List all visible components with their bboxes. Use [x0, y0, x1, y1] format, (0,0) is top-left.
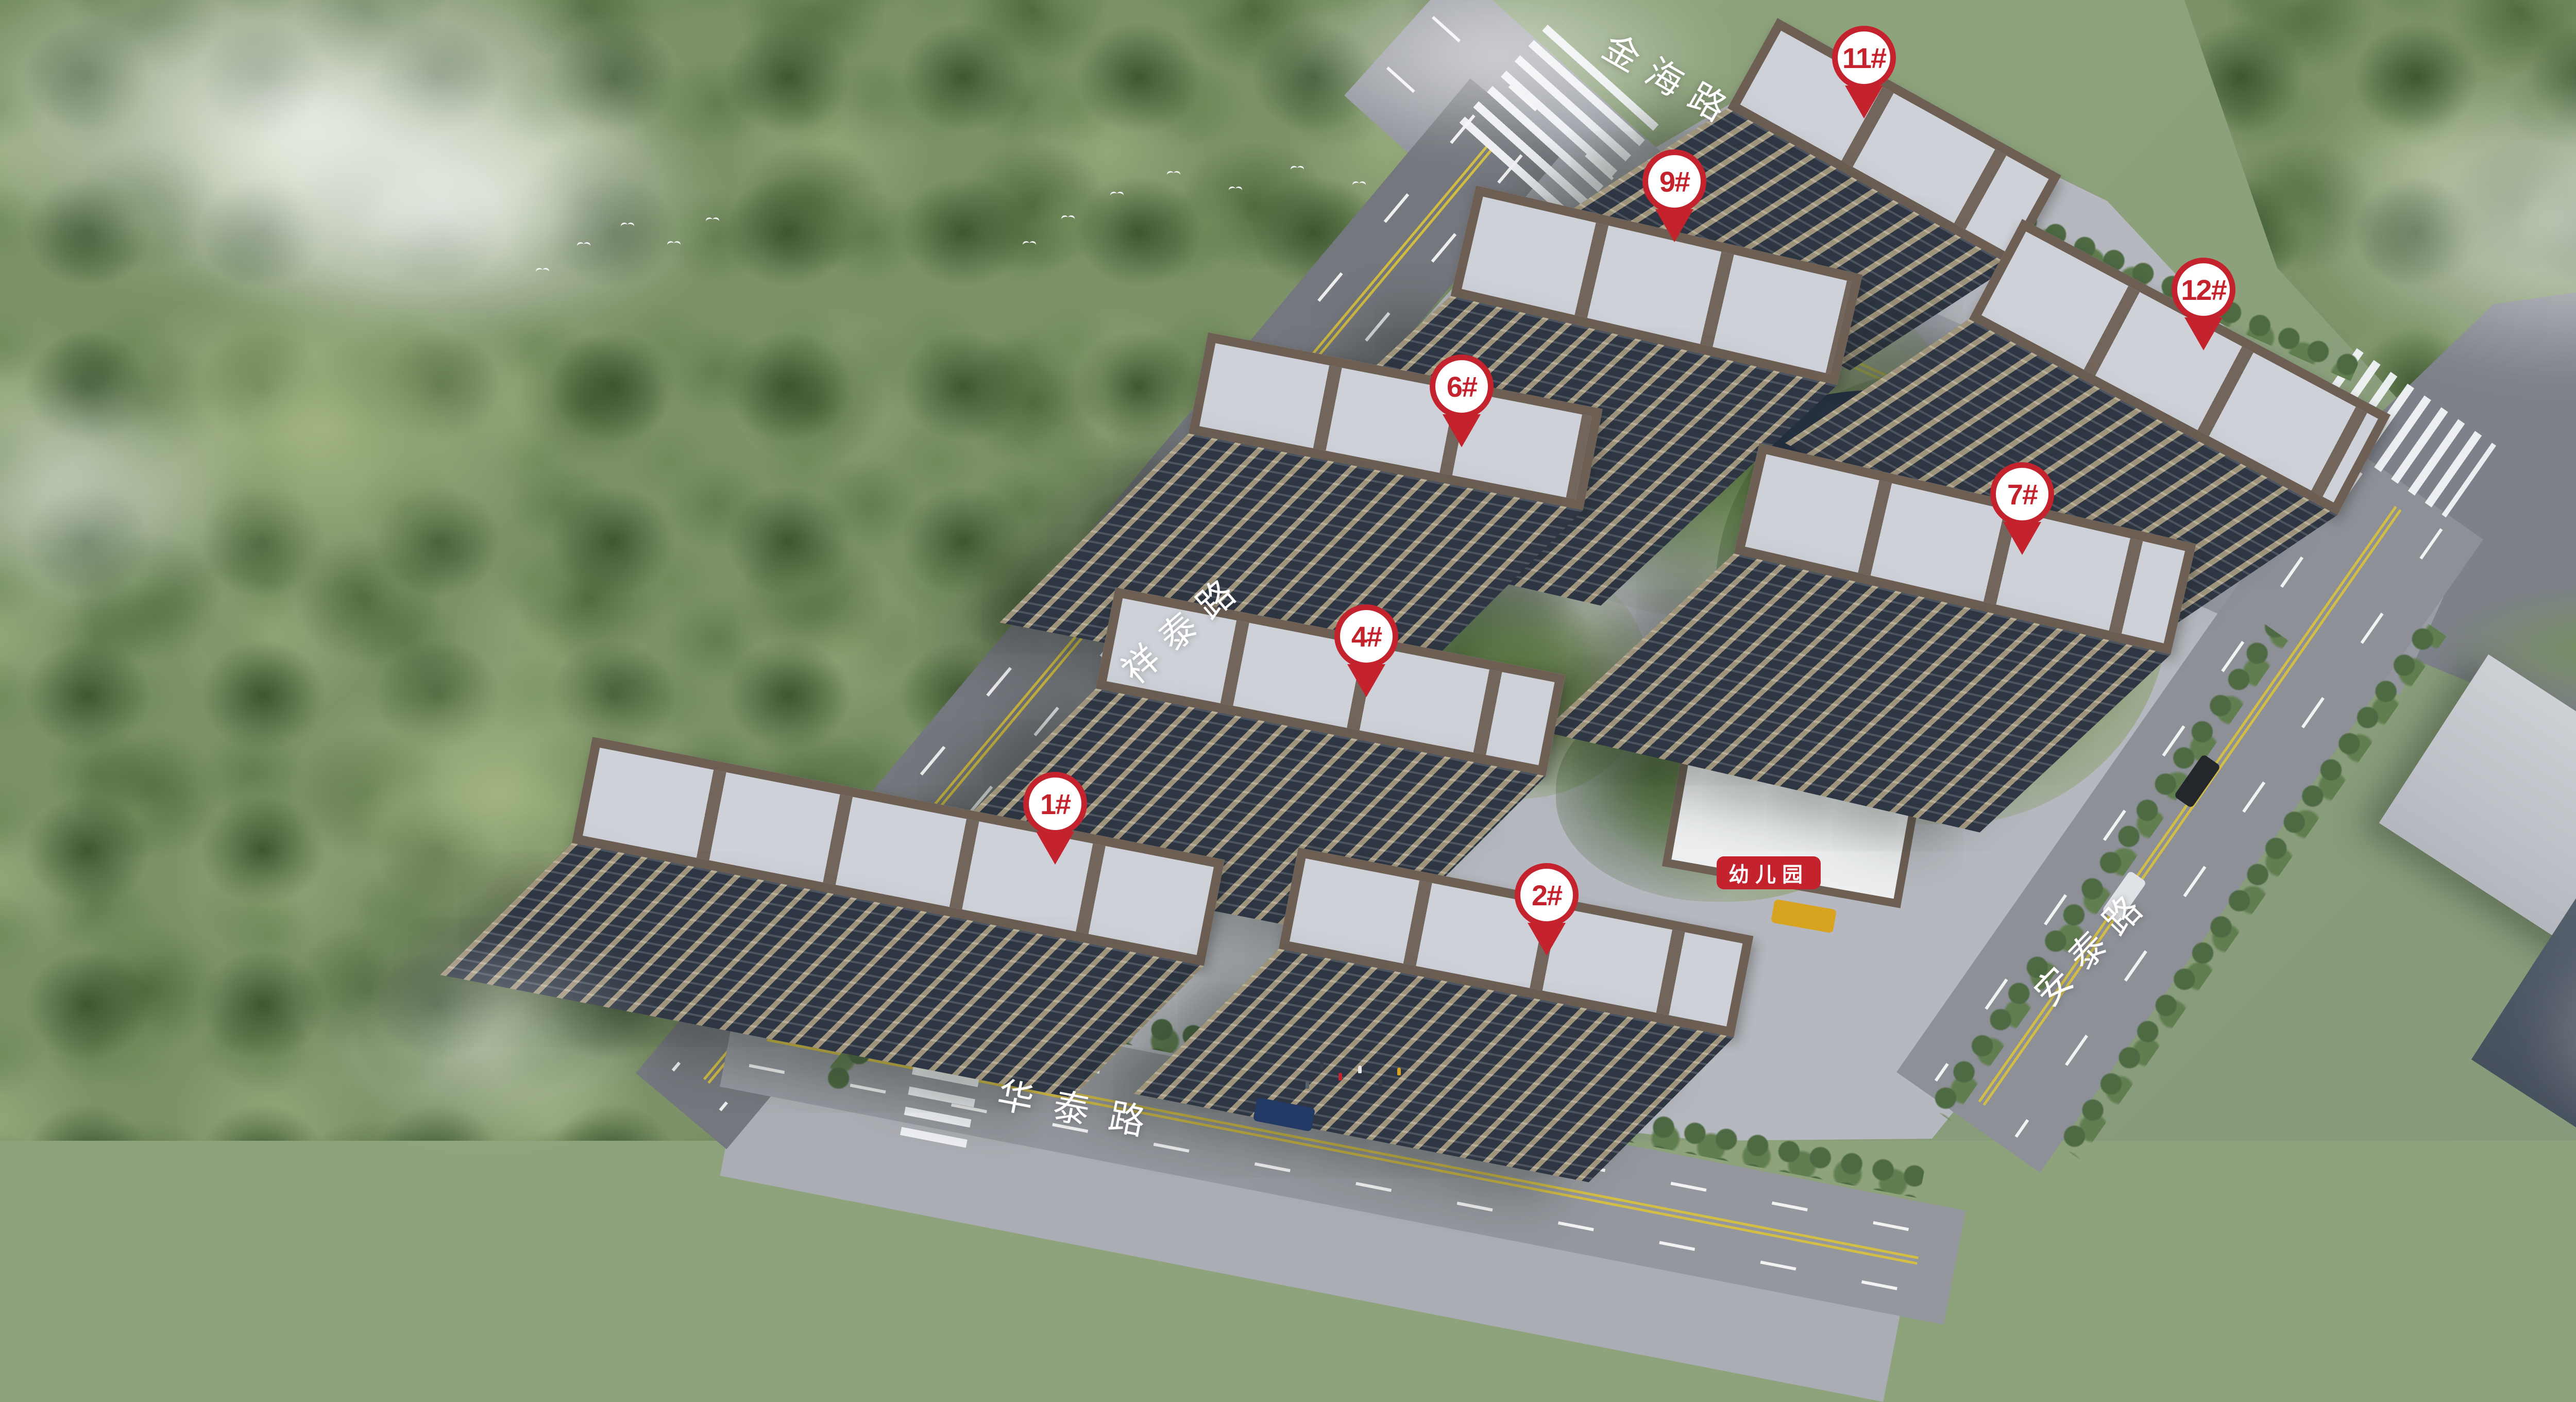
marker-circle: 2# [1515, 863, 1579, 927]
marker-pointer-icon [1528, 923, 1566, 956]
bird-icon [1229, 187, 1242, 193]
bird-icon [1061, 215, 1075, 222]
marker-circle: 12# [2172, 258, 2235, 322]
marker-label: 6# [1447, 370, 1477, 403]
mist-cloud [309, 927, 670, 1144]
building-marker-6: 6# [1428, 354, 1496, 447]
person [1306, 1081, 1309, 1089]
kindergarten-badge: 幼儿园 [1717, 856, 1821, 889]
person [1397, 1068, 1401, 1075]
marker-label: 9# [1659, 165, 1689, 198]
marker-circle: 1# [1023, 772, 1087, 836]
bird-icon [1352, 181, 1366, 188]
bird-icon [577, 242, 590, 248]
bird-icon [621, 223, 634, 229]
marker-circle: 11# [1832, 26, 1896, 90]
bird-icon [1167, 171, 1180, 177]
marker-circle: 9# [1642, 149, 1706, 213]
bird-icon [536, 268, 549, 274]
building-marker-7: 7# [1988, 462, 2056, 555]
person [1358, 1066, 1362, 1073]
person [1338, 1073, 1342, 1080]
marker-circle: 6# [1430, 354, 1494, 418]
bird-icon [1110, 192, 1124, 198]
building-marker-2: 2# [1513, 863, 1581, 956]
building-marker-9: 9# [1640, 149, 1708, 242]
marker-label: 12# [2181, 273, 2226, 307]
marker-pointer-icon [1845, 86, 1883, 119]
building-marker-11: 11# [1830, 26, 1898, 119]
mist-cloud [155, 77, 721, 345]
marker-pointer-icon [1036, 832, 1074, 865]
bird-icon [667, 241, 681, 247]
marker-pointer-icon [1347, 664, 1385, 697]
person [1379, 1079, 1382, 1087]
marker-pointer-icon [1443, 414, 1481, 447]
marker-label: 2# [1532, 879, 1562, 912]
marker-label: 11# [1842, 41, 1886, 75]
marker-circle: 4# [1334, 604, 1398, 668]
marker-label: 1# [1040, 787, 1070, 821]
building-marker-4: 4# [1332, 604, 1400, 697]
marker-pointer-icon [2003, 522, 2041, 555]
marker-pointer-icon [2184, 317, 2223, 350]
bird-icon [1023, 241, 1036, 247]
marker-circle: 7# [1990, 462, 2054, 526]
person [1320, 1061, 1324, 1069]
building-marker-1: 1# [1021, 772, 1089, 865]
bird-icon [1291, 166, 1304, 172]
bird-icon [706, 217, 719, 224]
marker-label: 4# [1351, 620, 1381, 653]
building-marker-12: 12# [2170, 258, 2238, 350]
marker-label: 7# [2007, 478, 2037, 511]
marker-pointer-icon [1655, 209, 1693, 242]
